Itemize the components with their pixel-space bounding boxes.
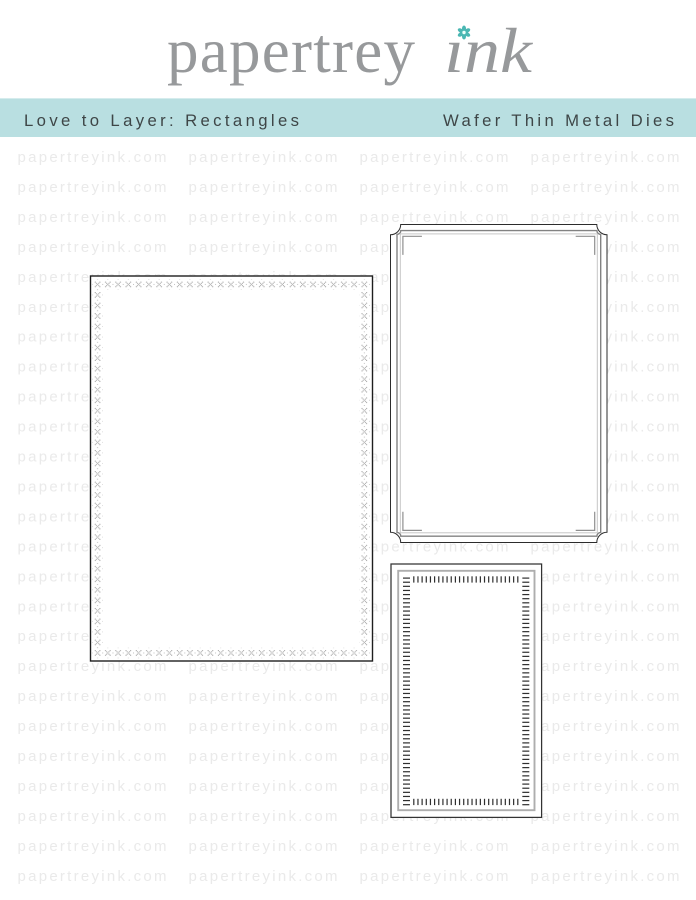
svg-text:papertreyink.com: papertreyink.com (189, 239, 339, 256)
svg-text:papertreyink.com: papertreyink.com (531, 838, 681, 855)
svg-text:papertreyink.com: papertreyink.com (18, 239, 168, 256)
svg-text:papertrey: papertrey (167, 16, 416, 86)
svg-text:papertreyink.com: papertreyink.com (360, 179, 510, 196)
svg-text:papertreyink.com: papertreyink.com (531, 598, 681, 615)
svg-text:papertreyink.com: papertreyink.com (189, 149, 339, 166)
svg-text:papertreyink.com: papertreyink.com (18, 209, 168, 226)
svg-text:papertreyink.com: papertreyink.com (531, 778, 681, 795)
svg-text:papertreyink.com: papertreyink.com (189, 209, 339, 226)
svg-text:papertreyink.com: papertreyink.com (531, 808, 681, 825)
svg-text:papertreyink.com: papertreyink.com (360, 149, 510, 166)
svg-text:papertreyink.com: papertreyink.com (189, 838, 339, 855)
svg-text:papertreyink.com: papertreyink.com (531, 628, 681, 645)
svg-text:papertreyink.com: papertreyink.com (189, 868, 339, 885)
svg-text:papertreyink.com: papertreyink.com (189, 808, 339, 825)
svg-text:papertreyink.com: papertreyink.com (531, 568, 681, 585)
svg-text:papertreyink.com: papertreyink.com (189, 748, 339, 765)
svg-text:papertreyink.com: papertreyink.com (18, 149, 168, 166)
svg-text:papertreyink.com: papertreyink.com (189, 688, 339, 705)
svg-text:papertreyink.com: papertreyink.com (531, 688, 681, 705)
svg-text:papertreyink.com: papertreyink.com (18, 838, 168, 855)
svg-text:papertreyink.com: papertreyink.com (531, 658, 681, 675)
svg-text:papertreyink.com: papertreyink.com (531, 149, 681, 166)
svg-text:Love to Layer: Rectangles: Love to Layer: Rectangles (24, 111, 299, 130)
svg-text:papertreyink.com: papertreyink.com (189, 778, 339, 795)
svg-text:papertreyink.com: papertreyink.com (531, 209, 681, 226)
svg-text:papertreyink.com: papertreyink.com (18, 179, 168, 196)
svg-text:papertreyink.com: papertreyink.com (18, 748, 168, 765)
svg-text:papertreyink.com: papertreyink.com (18, 778, 168, 795)
svg-text:papertreyink.com: papertreyink.com (360, 209, 510, 226)
svg-text:papertreyink.com: papertreyink.com (531, 748, 681, 765)
svg-text:papertreyink.com: papertreyink.com (531, 179, 681, 196)
svg-text:papertreyink.com: papertreyink.com (360, 868, 510, 885)
svg-text:papertreyink.com: papertreyink.com (18, 718, 168, 735)
svg-text:Wafer Thin Metal Dies: Wafer Thin Metal Dies (443, 111, 674, 130)
svg-text:papertreyink.com: papertreyink.com (189, 179, 339, 196)
svg-text:papertreyink.com: papertreyink.com (18, 808, 168, 825)
svg-text:papertreyink.com: papertreyink.com (360, 838, 510, 855)
svg-text:papertreyink.com: papertreyink.com (531, 718, 681, 735)
svg-text:papertreyink.com: papertreyink.com (189, 718, 339, 735)
svg-text:papertreyink.com: papertreyink.com (18, 688, 168, 705)
svg-text:papertreyink.com: papertreyink.com (18, 868, 168, 885)
svg-text:papertreyink.com: papertreyink.com (531, 868, 681, 885)
